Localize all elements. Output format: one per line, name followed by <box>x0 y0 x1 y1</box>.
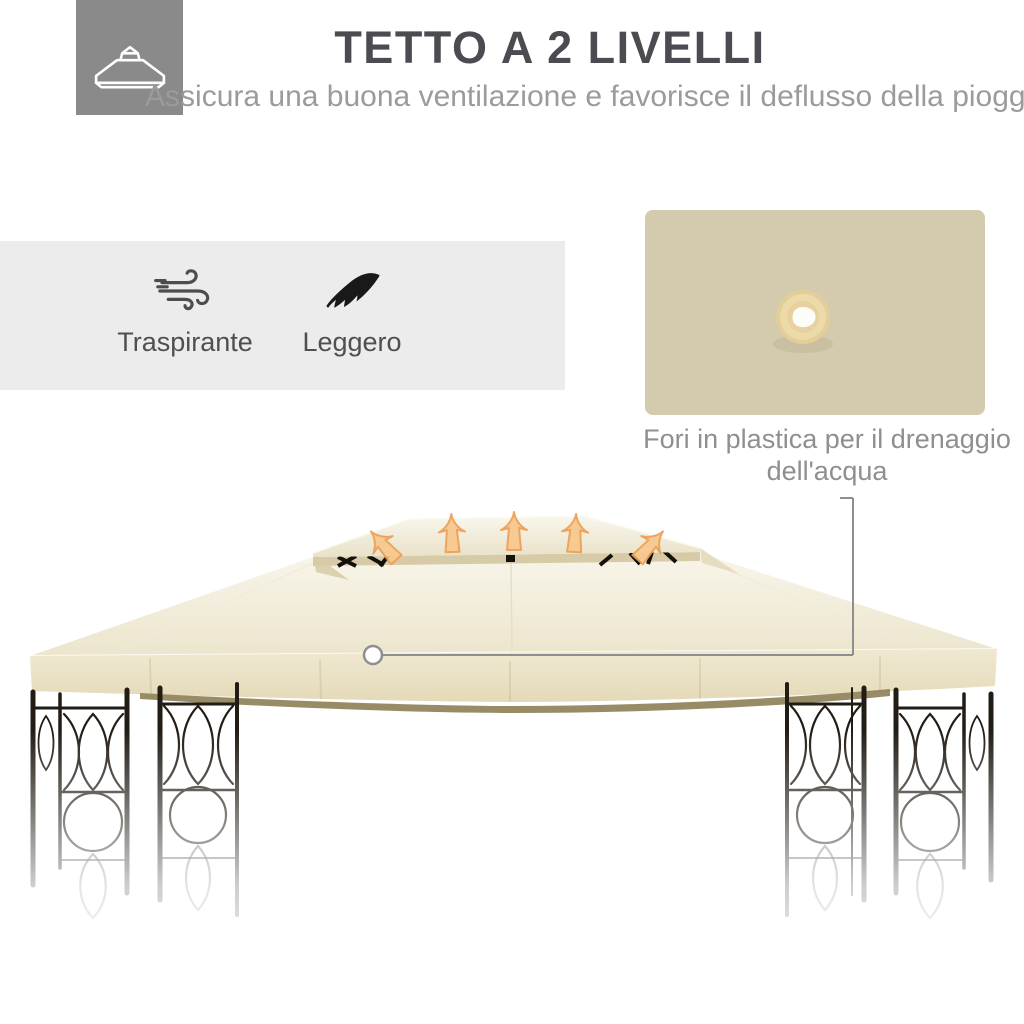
drainage-hole-image <box>645 210 985 415</box>
gazebo-photo <box>0 0 1024 1024</box>
drainage-hole-marker <box>364 646 382 664</box>
feature-label: Traspirante <box>100 327 270 358</box>
page-subtitle: Assicura una buona ventilazione e favori… <box>85 80 1024 114</box>
feature-band: Traspirante Leggero <box>0 241 565 390</box>
feature-lightweight: Leggero <box>277 265 427 358</box>
caption-line: dell'acqua <box>622 456 1024 488</box>
feature-breathable: Traspirante <box>100 265 270 358</box>
product-infographic: TETTO A 2 LIVELLI Assicura una buona ven… <box>0 0 1024 1024</box>
page-title: TETTO A 2 LIVELLI <box>110 22 990 74</box>
feather-icon <box>277 265 427 317</box>
drainage-hole <box>793 307 816 327</box>
wind-icon <box>100 265 270 317</box>
feature-label: Leggero <box>277 327 427 358</box>
caption-line: Fori in plastica per il drenaggio <box>622 424 1024 456</box>
inset-caption: Fori in plastica per il drenaggio dell'a… <box>622 424 1024 488</box>
drainage-hole-inset <box>645 210 985 415</box>
photo-fade <box>0 730 1024 1024</box>
